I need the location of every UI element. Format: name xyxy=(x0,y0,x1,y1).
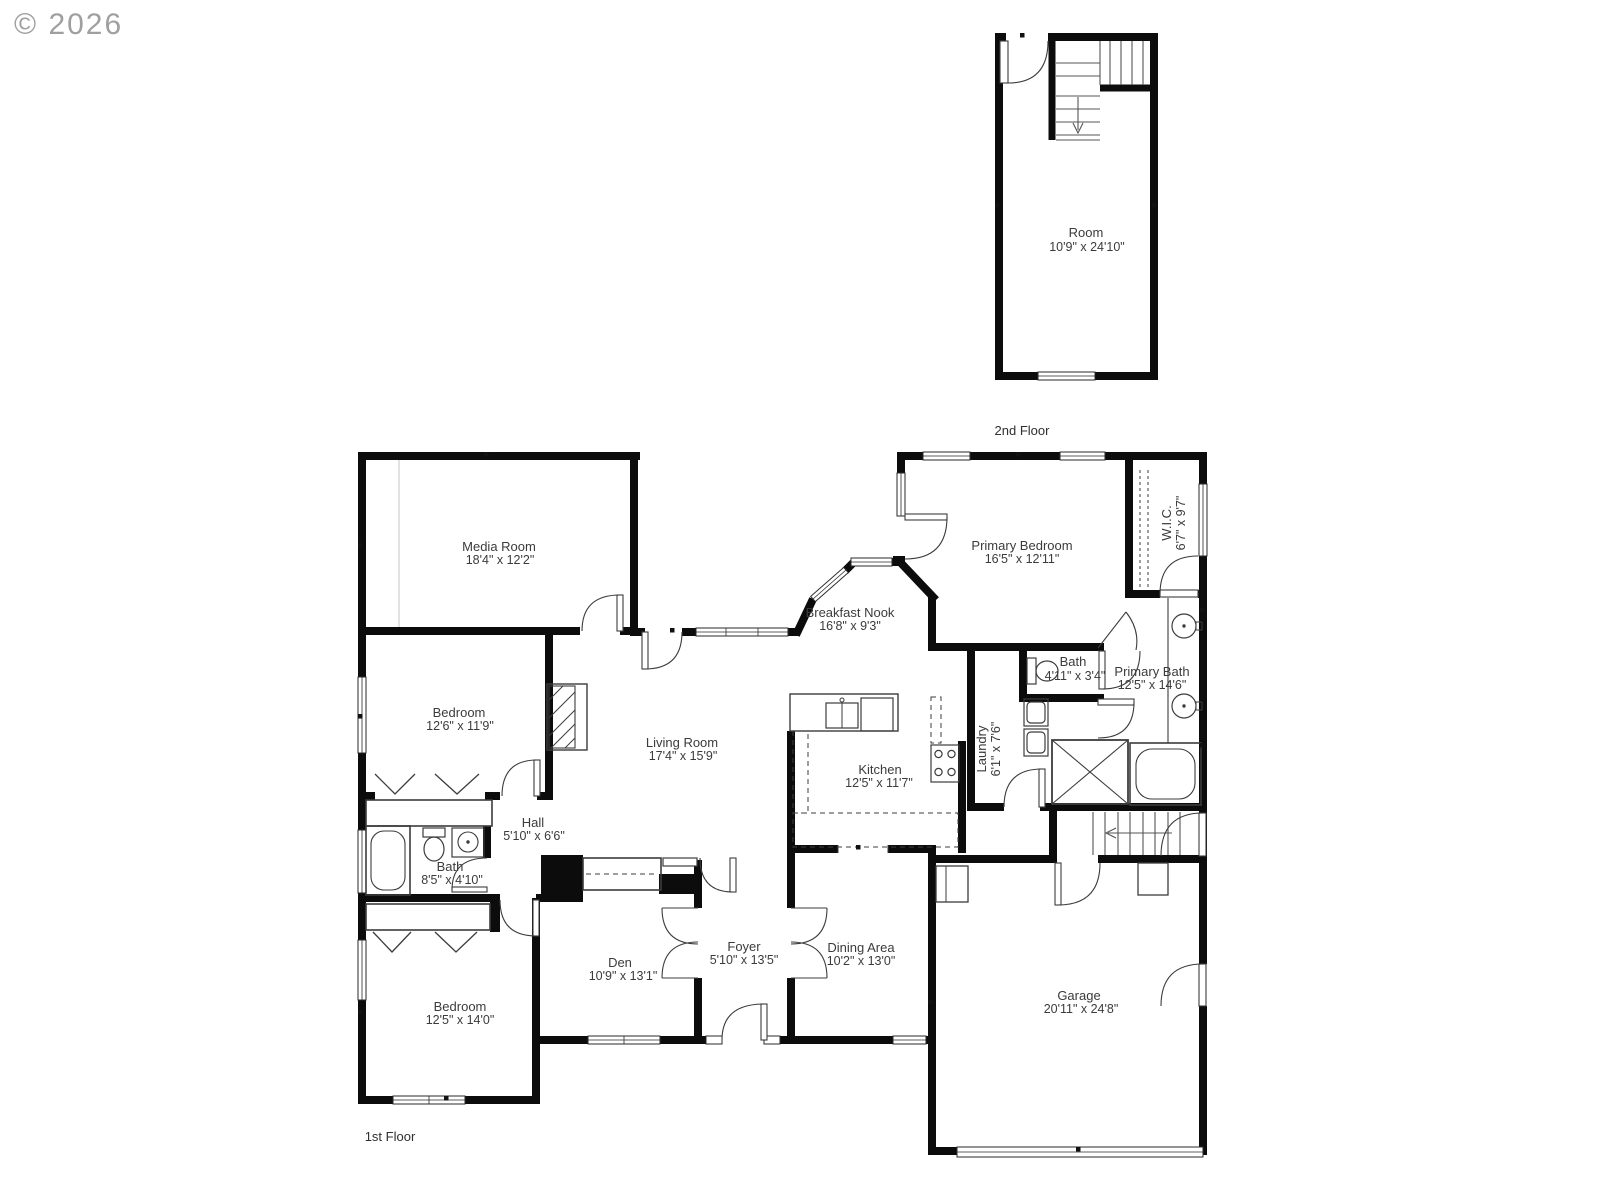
door-icon xyxy=(642,632,682,669)
breakfast-nook-name: Breakfast Nook xyxy=(806,605,895,620)
bath-wc-name: Bath xyxy=(1060,654,1087,669)
second-floor-caption: 2nd Floor xyxy=(995,423,1051,438)
second-floor-plan: Room 10'9" x 24'10" 2nd Floor xyxy=(995,33,1158,438)
bathtub-icon xyxy=(1130,743,1201,805)
garage-dims: 20'11" x 24'8" xyxy=(1044,1002,1119,1016)
toilet-icon xyxy=(423,828,445,861)
room-label-bedroom-upper: Bedroom 12'6" x 11'9" xyxy=(426,705,494,733)
bifold-door-icon xyxy=(435,932,477,952)
front-door-icon xyxy=(722,1004,767,1040)
stove-icon xyxy=(931,745,959,782)
kitchen-name: Kitchen xyxy=(858,762,901,777)
bifold-door-icon xyxy=(435,774,479,794)
room-label-laundry: Laundry 6'1" x 7'6" xyxy=(974,722,1003,777)
room-label-primary-bath: Primary Bath 12'5" x 14'6" xyxy=(1114,664,1189,692)
bedroom-lower-name: Bedroom xyxy=(434,999,487,1014)
room-label-bath-hall: Bath 8'5" x 4'10" xyxy=(421,859,483,887)
room-label-wic: W.I.C. 6'7" x 9'7" xyxy=(1159,496,1188,551)
bifold-door-icon xyxy=(375,774,415,794)
door-icon xyxy=(500,900,539,936)
second-floor-window-icon xyxy=(1038,372,1095,380)
sink-icon xyxy=(1172,614,1202,638)
bifold-door-icon xyxy=(373,932,411,952)
bedroom-upper-name: Bedroom xyxy=(433,705,486,720)
wic-dims: 6'7" x 9'7" xyxy=(1174,496,1188,551)
bedroom-upper-dims: 12'6" x 11'9" xyxy=(426,719,494,733)
primary-bedroom-name: Primary Bedroom xyxy=(971,538,1072,553)
door-icon xyxy=(1160,556,1198,597)
floor-plan-page: © 2026 xyxy=(0,0,1600,1200)
foyer-dims: 5'10" x 13'5" xyxy=(710,953,779,967)
room-label-media-room: Media Room 18'4" x 12'2" xyxy=(462,539,536,567)
door-icon xyxy=(1055,863,1100,905)
washer-dryer-icon xyxy=(1024,699,1048,756)
staircase-down-icon xyxy=(1093,812,1180,855)
room-label-living-room: Living Room 17'4" x 15'9" xyxy=(646,735,718,763)
room-label-upstairs-room: Room 10'9" x 24'10" xyxy=(1049,225,1125,254)
door-icon xyxy=(1004,769,1045,807)
foyer-name: Foyer xyxy=(727,939,761,954)
wic-name: W.I.C. xyxy=(1159,505,1174,540)
water-heater-icon xyxy=(936,866,968,902)
sink-icon xyxy=(1172,694,1202,718)
hall-dims: 5'10" x 6'6" xyxy=(503,829,565,843)
interior-thin-structures xyxy=(366,460,1202,952)
shower-icon xyxy=(1052,740,1128,804)
primary-bath-dims: 12'5" x 14'6" xyxy=(1118,678,1187,692)
den-dims: 10'9" x 13'1" xyxy=(589,969,658,983)
room-label-breakfast-nook: Breakfast Nook 16'8" x 9'3" xyxy=(806,605,895,633)
first-floor-caption: 1st Floor xyxy=(365,1129,416,1144)
floor-plan-drawing: © 2026 xyxy=(0,0,1600,1200)
primary-bath-name: Primary Bath xyxy=(1114,664,1189,679)
double-door-icon xyxy=(791,908,827,978)
room-label-den: Den 10'9" x 13'1" xyxy=(589,955,658,983)
room-label-bath-wc: Bath 4'11" x 3'4" xyxy=(1045,654,1106,683)
room-label-foyer: Foyer 5'10" x 13'5" xyxy=(710,939,779,967)
double-door-icon xyxy=(662,908,698,978)
media-room-dims: 18'4" x 12'2" xyxy=(466,553,535,567)
sink-icon xyxy=(452,828,484,857)
bath-hall-dims: 8'5" x 4'10" xyxy=(421,873,483,887)
door-icon xyxy=(502,760,540,796)
breakfast-nook-dims: 16'8" x 9'3" xyxy=(819,619,881,633)
living-room-name: Living Room xyxy=(646,735,718,750)
bath-hall-name: Bath xyxy=(437,859,464,874)
laundry-name: Laundry xyxy=(974,725,989,772)
bedroom-lower-dims: 12'5" x 14'0" xyxy=(426,1013,495,1027)
door-icon xyxy=(1161,964,1206,1006)
kitchen-dims: 12'5" x 11'7" xyxy=(845,776,913,790)
room-label-dining-area: Dining Area 10'2" x 13'0" xyxy=(827,940,896,968)
garage-step xyxy=(1138,863,1168,895)
door-icon xyxy=(582,595,623,631)
upstairs-room-dims: 10'9" x 24'10" xyxy=(1049,240,1125,254)
room-label-kitchen: Kitchen 12'5" x 11'7" xyxy=(845,762,913,790)
laundry-dims: 6'1" x 7'6" xyxy=(989,722,1003,777)
room-label-hall: Hall 5'10" x 6'6" xyxy=(503,815,565,843)
media-room-name: Media Room xyxy=(462,539,536,554)
living-room-dims: 17'4" x 15'9" xyxy=(649,749,718,763)
room-label-garage: Garage 20'11" x 24'8" xyxy=(1044,988,1119,1016)
door-icon xyxy=(905,514,947,559)
first-floor-plan: Media Room 18'4" x 12'2" Bedroom 12'6" x… xyxy=(358,452,1207,1157)
dining-area-dims: 10'2" x 13'0" xyxy=(827,954,896,968)
door-icon xyxy=(1098,699,1134,738)
second-floor-stair-walls xyxy=(1052,41,1154,140)
upstairs-room-name: Room xyxy=(1069,225,1104,240)
bath-wc-dims: 4'11" x 3'4" xyxy=(1045,669,1106,683)
dining-area-name: Dining Area xyxy=(827,940,895,955)
bathtub-icon xyxy=(366,826,410,895)
second-floor-entry-door-icon xyxy=(1000,41,1048,83)
garage-name: Garage xyxy=(1057,988,1100,1003)
room-label-bedroom-lower: Bedroom 12'5" x 14'0" xyxy=(426,999,495,1027)
hall-name: Hall xyxy=(522,815,545,830)
den-name: Den xyxy=(608,955,632,970)
door-icon xyxy=(700,858,736,892)
primary-bedroom-dims: 16'5" x 12'11" xyxy=(985,552,1060,566)
room-label-primary-bedroom: Primary Bedroom 16'5" x 12'11" xyxy=(971,538,1072,566)
copyright-watermark: © 2026 xyxy=(14,8,123,41)
